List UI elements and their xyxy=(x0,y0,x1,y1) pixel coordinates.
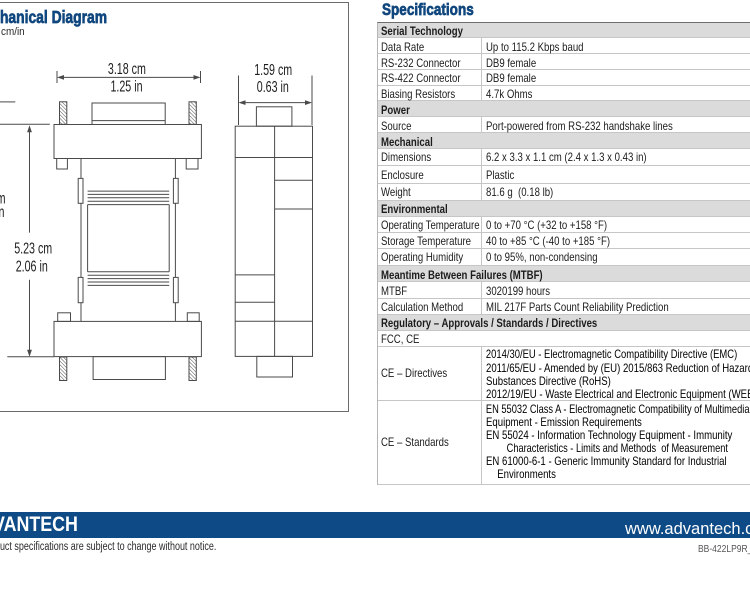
svg-text:5.23 cm: 5.23 cm xyxy=(14,240,52,257)
svg-text:n: n xyxy=(0,203,5,220)
svg-text:3.18 cm: 3.18 cm xyxy=(108,60,146,77)
svg-text:0.63 in: 0.63 in xyxy=(257,78,289,95)
svg-text:1.25 in: 1.25 in xyxy=(110,77,142,94)
svg-text:1.59 cm: 1.59 cm xyxy=(254,61,292,78)
svg-text:2.06 in: 2.06 in xyxy=(16,258,48,275)
